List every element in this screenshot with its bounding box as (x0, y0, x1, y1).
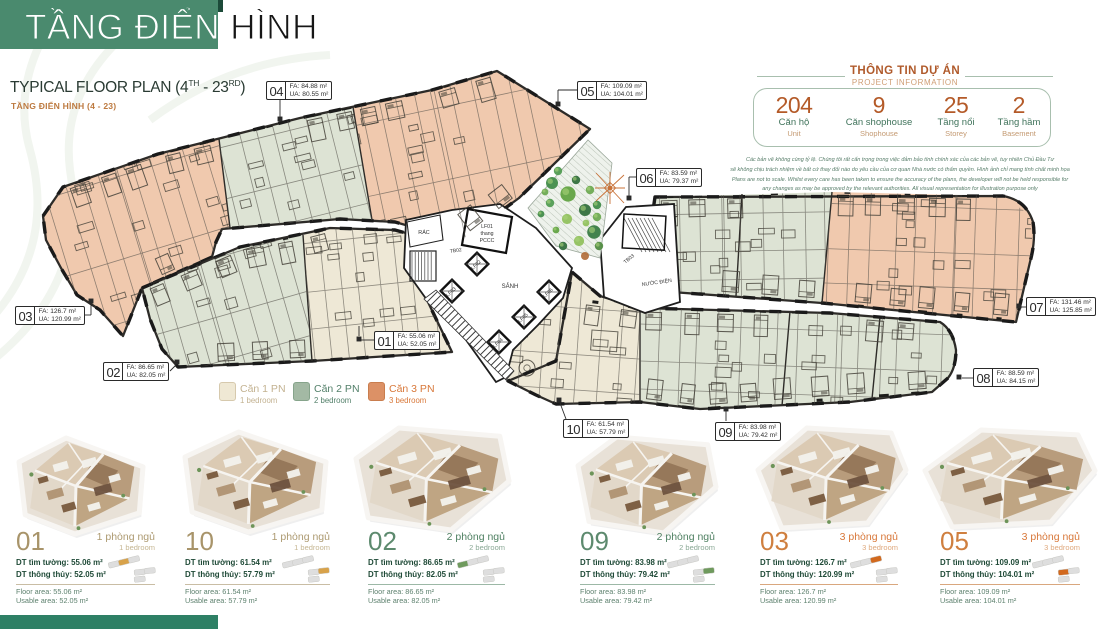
svg-text:PCCC: PCCC (480, 238, 495, 244)
svg-text:SẢNH: SẢNH (502, 283, 519, 290)
svg-text:RÁC: RÁC (418, 229, 429, 236)
svg-text:LF01: LF01 (481, 224, 493, 230)
svg-text:thang: thang (481, 231, 494, 237)
